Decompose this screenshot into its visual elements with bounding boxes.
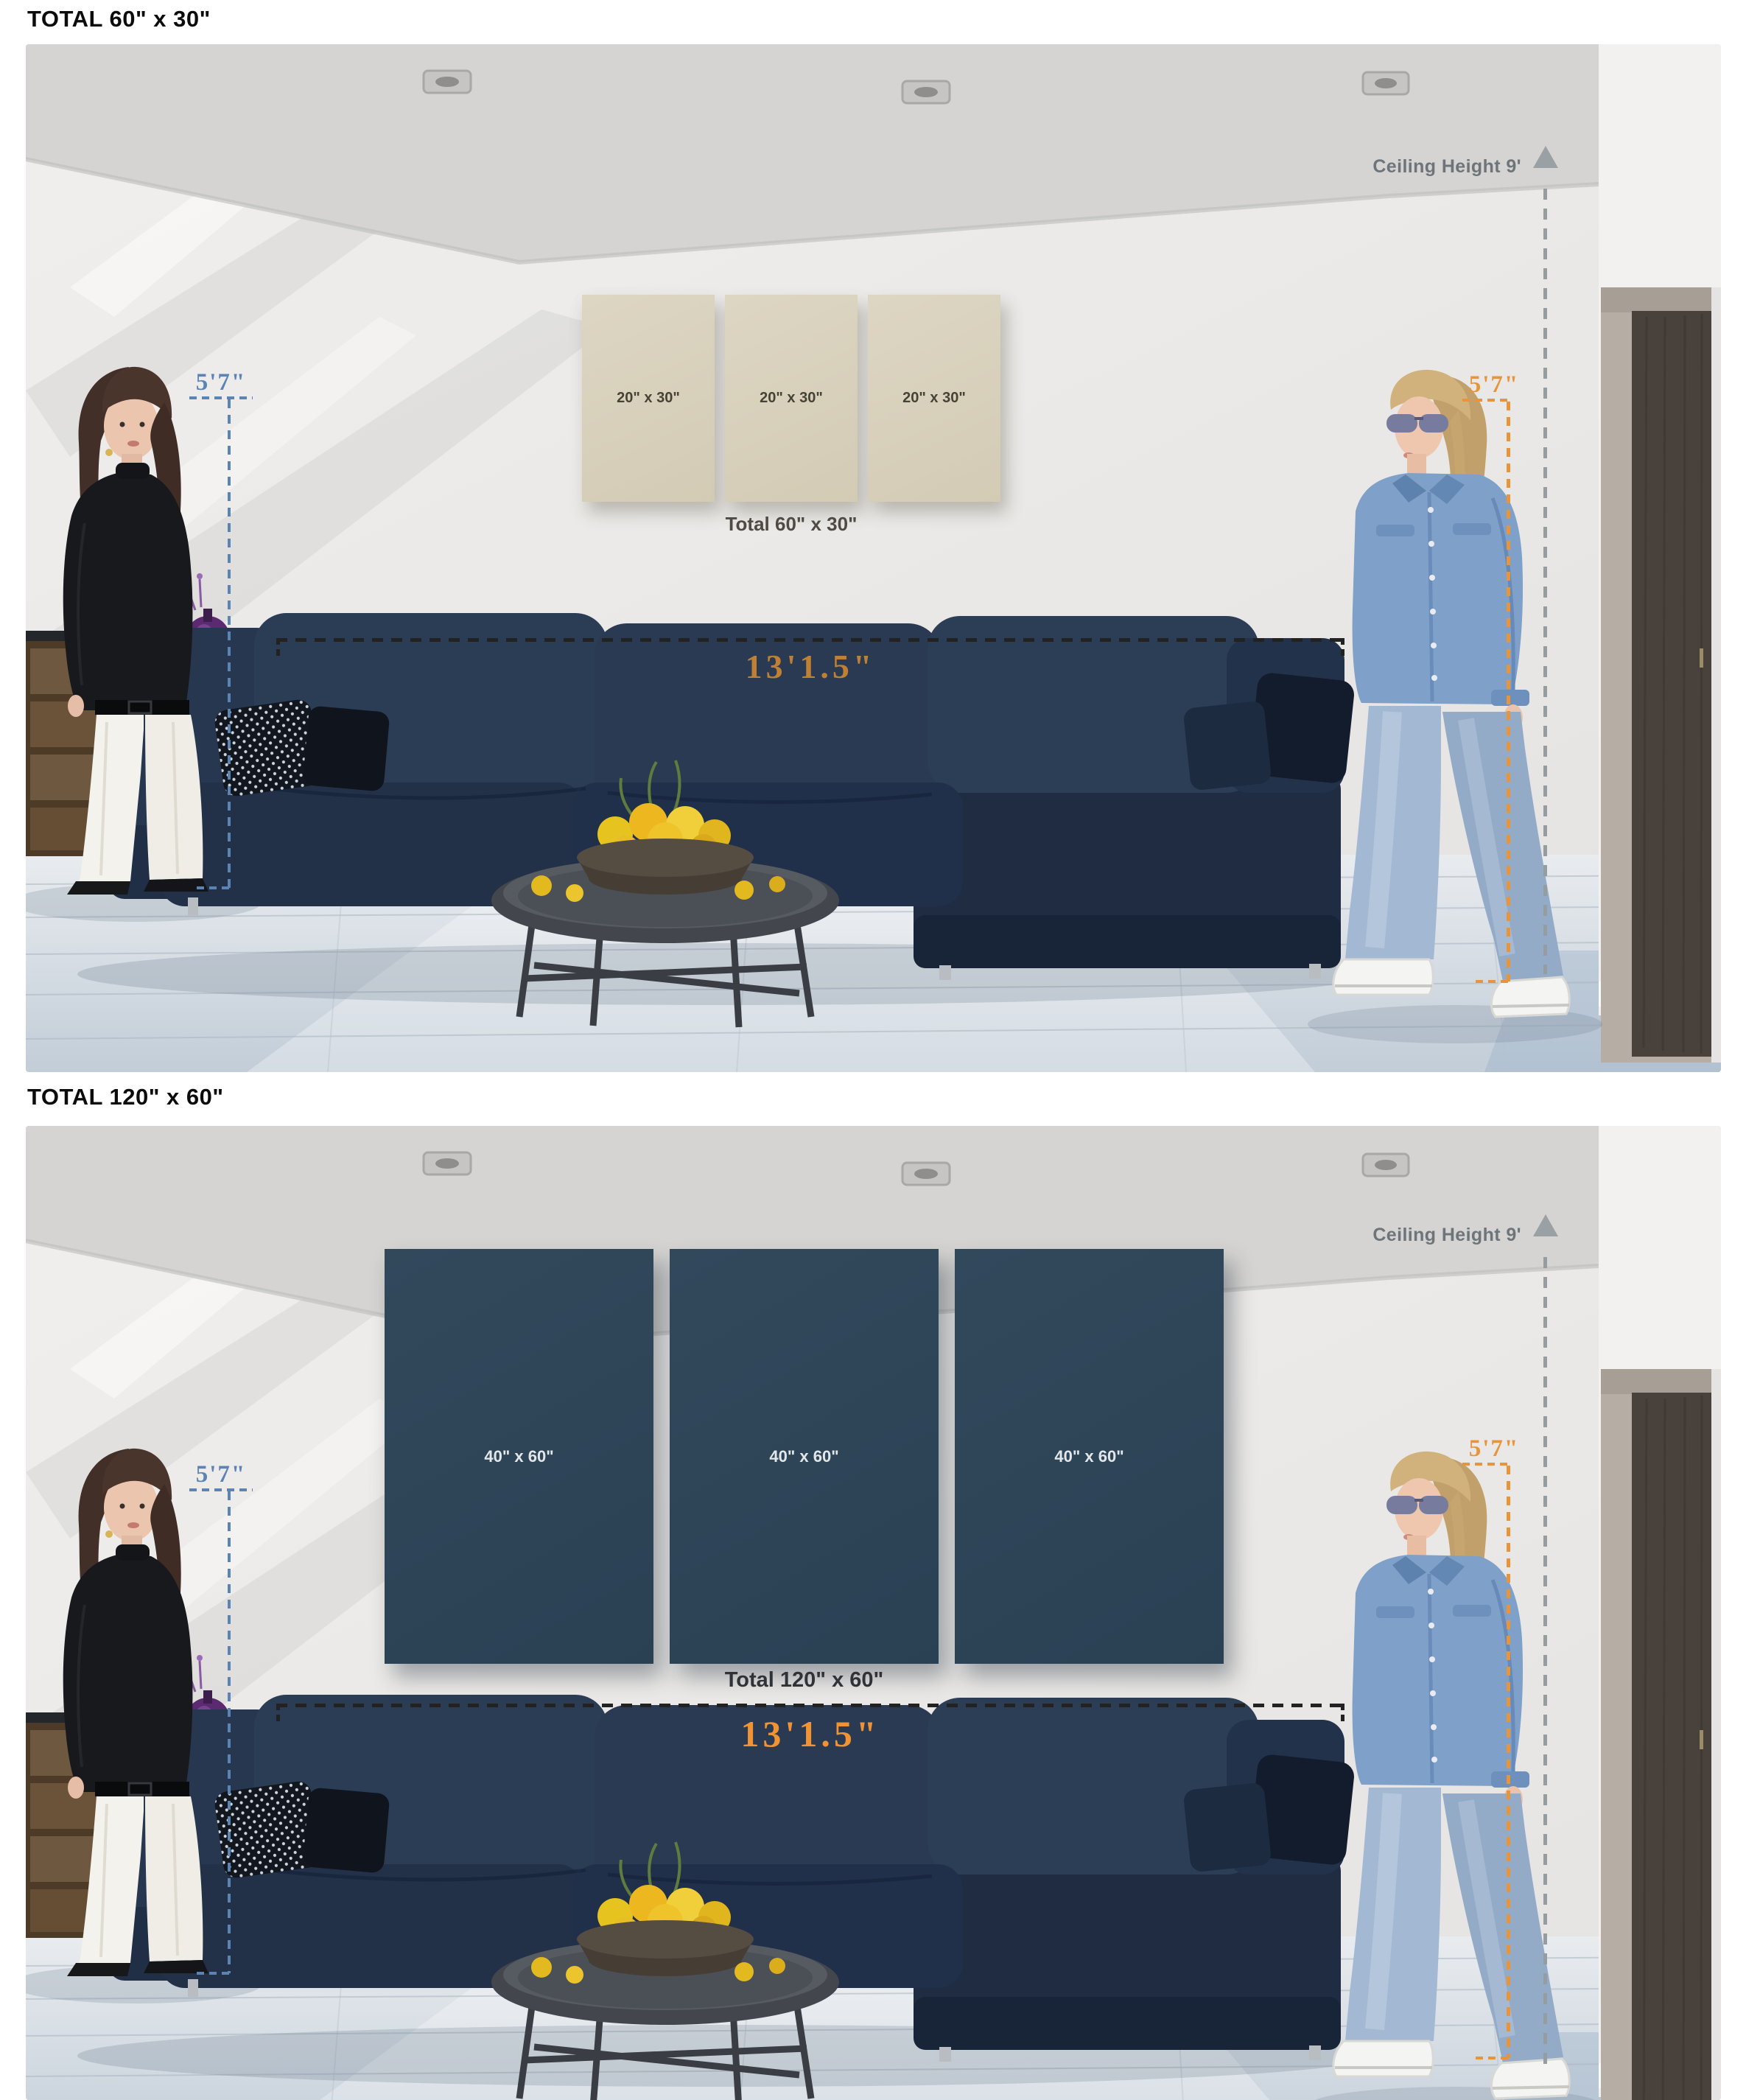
canvas-panel-size-label: 20" x 30": [760, 390, 823, 407]
canvas-total-size-label: Total 120" x 60": [385, 1668, 1224, 1693]
canvas-panel: 20" x 30": [582, 295, 715, 502]
room-photo-illustration: [26, 44, 1721, 1072]
person-height-line-left-end: [197, 886, 229, 889]
room-scene-large-canvas: 40" x 60" 40" x 60" 40" x 60" Total 120"…: [26, 1126, 1721, 2100]
canvas-panel: 40" x 60": [385, 1249, 653, 1664]
canvas-panel-size-label: 20" x 30": [617, 390, 680, 407]
person-height-label-left: 5'7": [188, 369, 254, 396]
person-height-label-right: 5'7": [1461, 1435, 1527, 1463]
door-handle: [1700, 648, 1703, 668]
canvas-panel: 40" x 60": [670, 1249, 939, 1664]
person-height-line-left: [228, 1491, 231, 1973]
person-height-underline-left: [189, 396, 253, 399]
ceiling-height-line: [1543, 1257, 1547, 2066]
canvas-panel-group: 40" x 60" 40" x 60" 40" x 60": [385, 1249, 1224, 1664]
person-height-underline-right: [1462, 1463, 1510, 1466]
ceiling-height-arrow-icon: [1533, 146, 1558, 168]
person-height-underline-left: [189, 1488, 253, 1491]
person-height-line-right: [1507, 402, 1510, 981]
person-height-label-right: 5'7": [1461, 371, 1527, 399]
person-height-label-left: 5'7": [188, 1461, 254, 1488]
canvas-panel: 20" x 30": [725, 295, 858, 502]
sofa-width-label: 13'1.5": [276, 1712, 1344, 1755]
canvas-panel: 20" x 30": [868, 295, 1000, 502]
ceiling-height-line: [1543, 189, 1547, 974]
canvas-panel-size-label: 40" x 60": [769, 1447, 838, 1466]
canvas-panel-size-label: 40" x 60": [484, 1447, 553, 1466]
canvas-panel-size-label: 40" x 60": [1054, 1447, 1123, 1466]
sofa-width-label: 13'1.5": [276, 647, 1344, 686]
person-height-line-right: [1507, 1466, 1510, 2058]
ceiling-height-label: Ceiling Height 9': [1344, 156, 1521, 178]
canvas-total-size-label: Total 60" x 30": [582, 513, 1000, 536]
person-height-line-right-end: [1476, 980, 1508, 983]
person-height-line-left-end: [197, 1972, 229, 1975]
sofa-width-line: [276, 1704, 1344, 1707]
ceiling-height-arrow-icon: [1533, 1214, 1558, 1236]
person-height-line-left: [228, 399, 231, 888]
sofa-width-line: [276, 638, 1344, 642]
canvas-panel-group: 20" x 30" 20" x 30" 20" x 30": [582, 295, 1000, 502]
section-title-small-set: TOTAL 60" x 30": [27, 6, 211, 32]
canvas-panel-size-label: 20" x 30": [902, 390, 966, 407]
person-height-line-right-end: [1476, 2057, 1508, 2059]
person-height-underline-right: [1462, 399, 1510, 402]
room-scene-small-canvas: 20" x 30" 20" x 30" 20" x 30" Total 60" …: [26, 44, 1721, 1072]
section-title-large-set: TOTAL 120" x 60": [27, 1084, 224, 1110]
canvas-panel: 40" x 60": [955, 1249, 1224, 1664]
ceiling-height-label: Ceiling Height 9': [1344, 1225, 1521, 1246]
